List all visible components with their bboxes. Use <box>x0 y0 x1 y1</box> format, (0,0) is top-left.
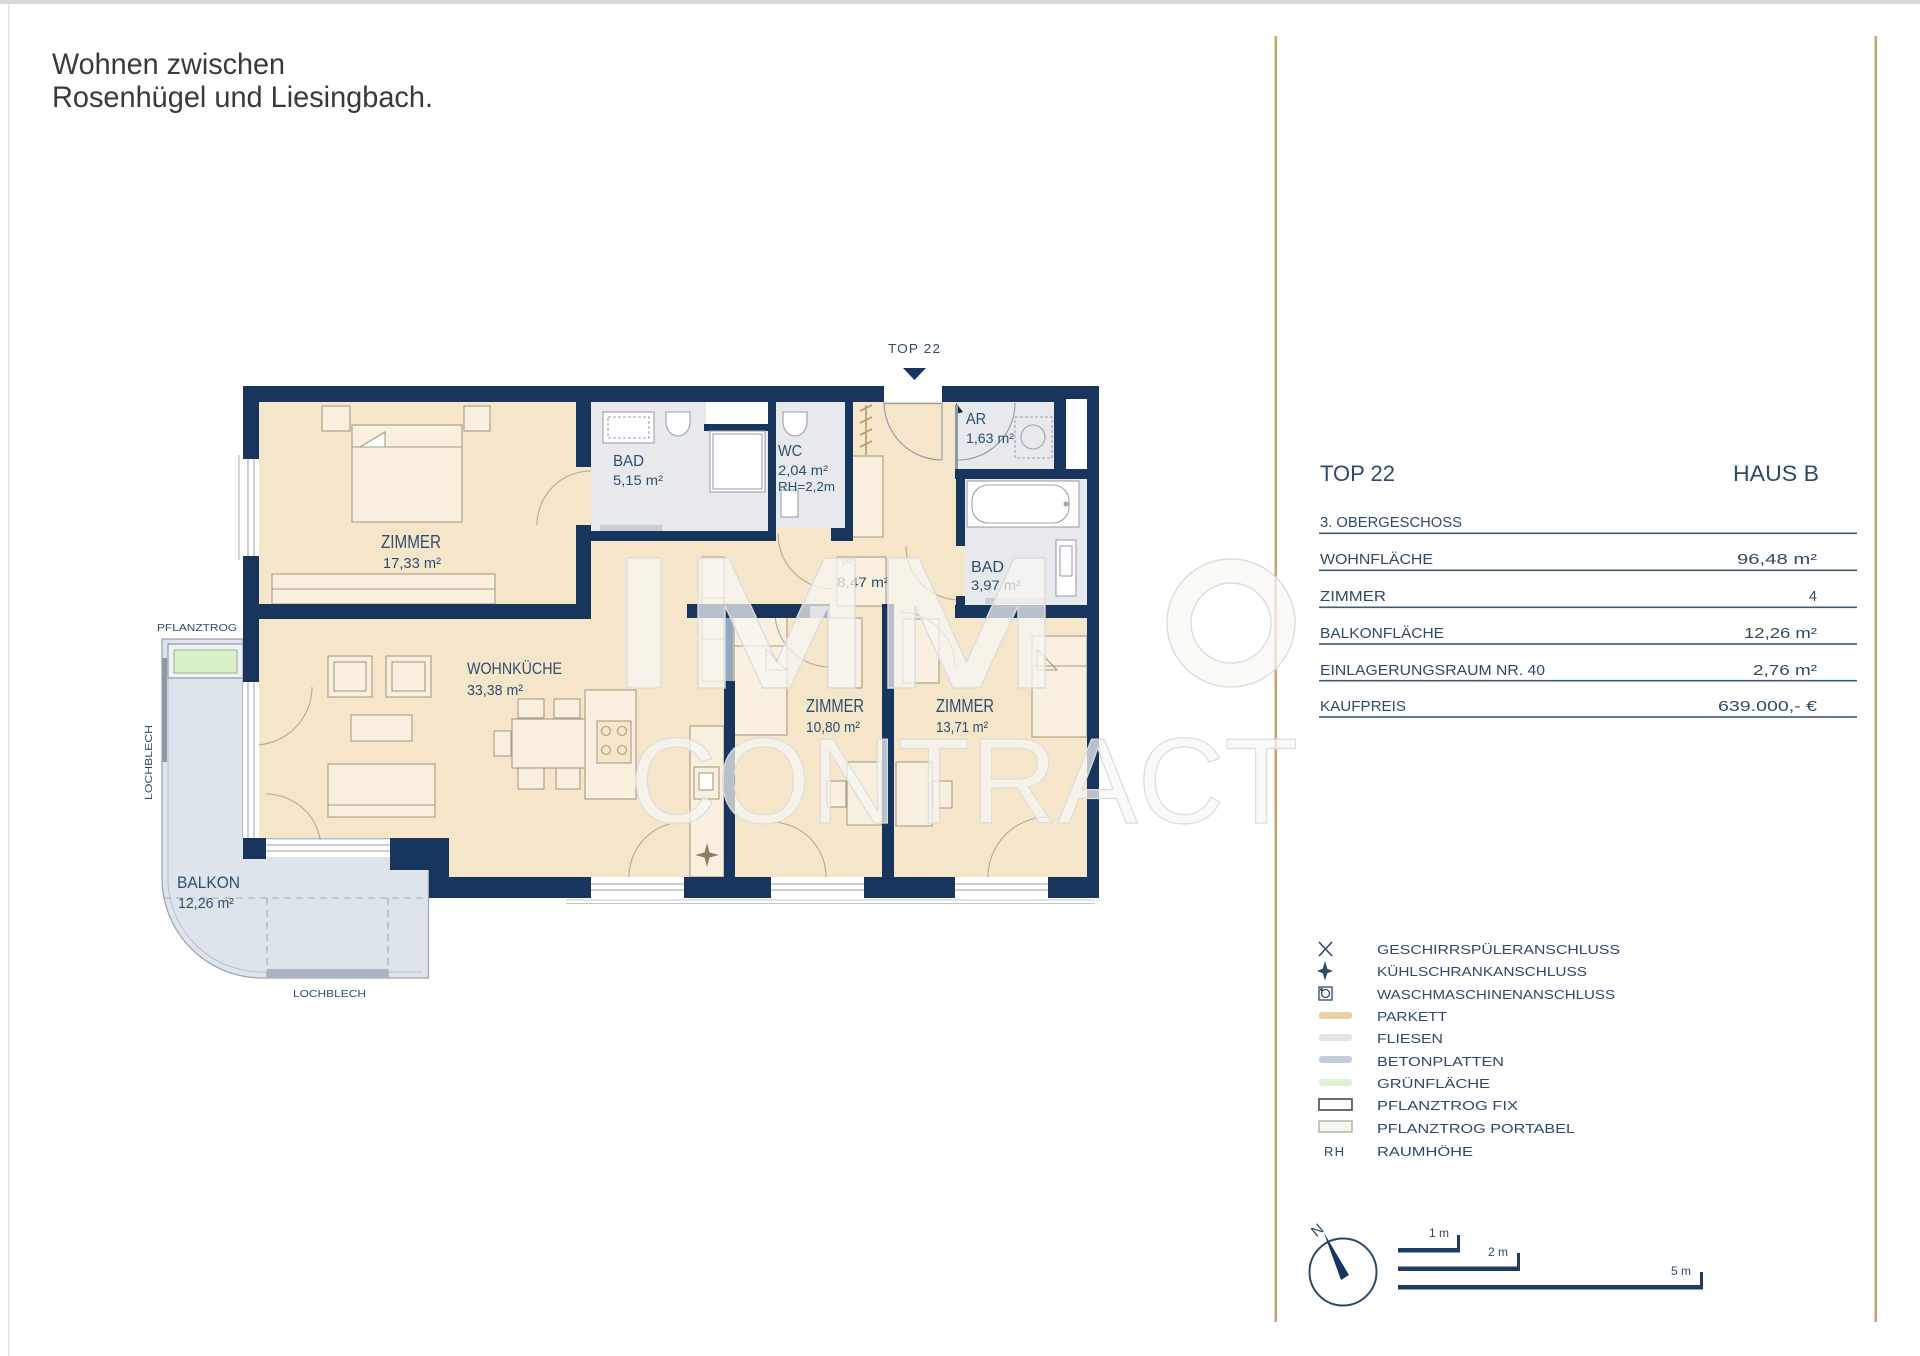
svg-text:WOHNFLÄCHE: WOHNFLÄCHE <box>1320 551 1433 568</box>
svg-text:KÜHLSCHRANKANSCHLUSS: KÜHLSCHRANKANSCHLUSS <box>1377 964 1587 979</box>
svg-text:BETONPLATTEN: BETONPLATTEN <box>1377 1054 1504 1069</box>
svg-text:3. OBERGESCHOSS: 3. OBERGESCHOSS <box>1320 515 1462 531</box>
svg-text:GESCHIRRSPÜLERANSCHLUSS: GESCHIRRSPÜLERANSCHLUSS <box>1377 942 1620 957</box>
svg-text:WASCHMASCHINENANSCHLUSS: WASCHMASCHINENANSCHLUSS <box>1377 987 1615 1002</box>
svg-text:2,76 m²: 2,76 m² <box>1753 663 1817 679</box>
svg-text:BALKONFLÄCHE: BALKONFLÄCHE <box>1320 625 1444 642</box>
svg-text:2,04 m²: 2,04 m² <box>778 462 828 478</box>
svg-text:ZIMMER: ZIMMER <box>381 532 441 552</box>
svg-text:GRÜNFLÄCHE: GRÜNFLÄCHE <box>1377 1076 1490 1091</box>
svg-text:96,48 m²: 96,48 m² <box>1737 552 1817 568</box>
svg-text:12,26 m²: 12,26 m² <box>1744 626 1817 642</box>
svg-text:4: 4 <box>1809 589 1817 605</box>
svg-text:PFLANZTROG FIX: PFLANZTROG FIX <box>1377 1098 1518 1113</box>
svg-text:RH=2,2m: RH=2,2m <box>778 479 835 494</box>
svg-text:LOCHBLECH: LOCHBLECH <box>293 988 366 1000</box>
svg-text:CONTRACT: CONTRACT <box>630 713 1298 849</box>
svg-text:17,33 m²: 17,33 m² <box>383 555 441 572</box>
svg-text:ZIMMER: ZIMMER <box>1320 589 1386 605</box>
svg-text:639.000,- €: 639.000,- € <box>1718 699 1817 715</box>
svg-text:BAD: BAD <box>613 453 644 470</box>
svg-text:5,15 m²: 5,15 m² <box>613 472 663 488</box>
svg-text:TOP 22: TOP 22 <box>888 341 941 356</box>
svg-text:Rosenhügel und Liesingbach.: Rosenhügel und Liesingbach. <box>52 81 433 114</box>
svg-text:WOHNKÜCHE: WOHNKÜCHE <box>467 660 562 678</box>
svg-text:12,26 m²: 12,26 m² <box>178 896 234 912</box>
svg-text:RH: RH <box>1324 1144 1345 1159</box>
svg-text:BAD: BAD <box>971 559 1004 576</box>
svg-text:33,38 m²: 33,38 m² <box>467 682 523 699</box>
svg-text:FLIESEN: FLIESEN <box>1377 1031 1443 1046</box>
svg-text:1 m: 1 m <box>1429 1226 1449 1240</box>
svg-text:TOP 22: TOP 22 <box>1320 461 1395 486</box>
svg-text:KAUFPREIS: KAUFPREIS <box>1320 699 1406 715</box>
svg-text:HAUS B: HAUS B <box>1733 461 1819 486</box>
svg-text:5 m: 5 m <box>1671 1264 1691 1278</box>
svg-text:PFLANZTROG: PFLANZTROG <box>157 622 237 634</box>
svg-text:AR: AR <box>966 411 986 428</box>
svg-text:1,63 m²: 1,63 m² <box>966 430 1014 446</box>
svg-text:2 m: 2 m <box>1488 1245 1508 1259</box>
svg-text:WC: WC <box>778 443 802 460</box>
svg-text:BALKON: BALKON <box>177 873 240 892</box>
svg-text:EINLAGERUNGSRAUM NR. 40: EINLAGERUNGSRAUM NR. 40 <box>1320 663 1545 679</box>
svg-text:PFLANZTROG PORTABEL: PFLANZTROG PORTABEL <box>1377 1121 1575 1136</box>
svg-text:Wohnen zwischen: Wohnen zwischen <box>52 48 285 81</box>
svg-text:PARKETT: PARKETT <box>1377 1009 1447 1024</box>
svg-text:LOCHBLECH: LOCHBLECH <box>143 725 155 800</box>
svg-text:RAUMHÖHE: RAUMHÖHE <box>1377 1144 1473 1159</box>
